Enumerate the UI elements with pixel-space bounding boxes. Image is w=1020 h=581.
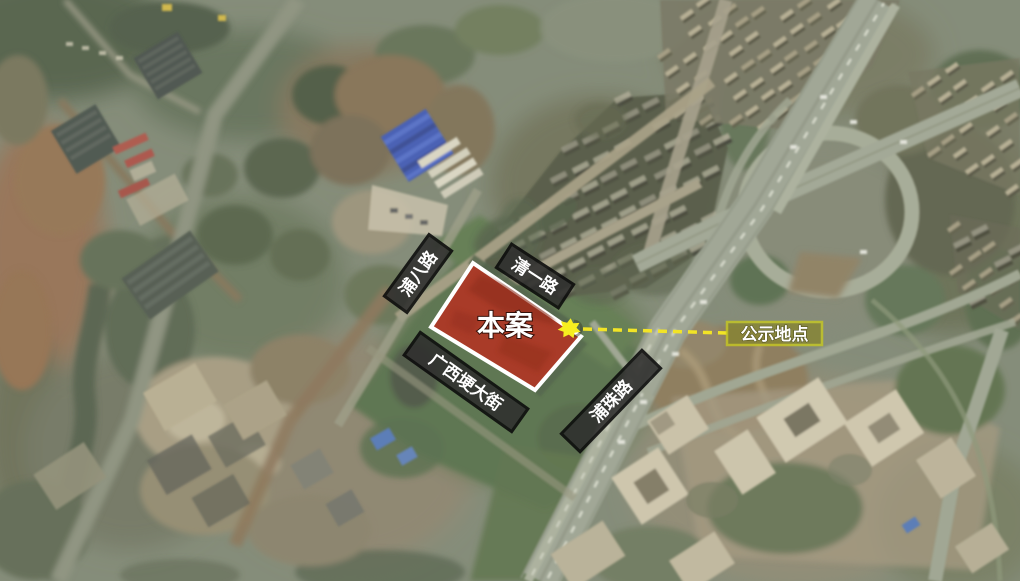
svg-text:本案: 本案 (477, 309, 534, 341)
svg-text:公示地点: 公示地点 (741, 324, 809, 344)
